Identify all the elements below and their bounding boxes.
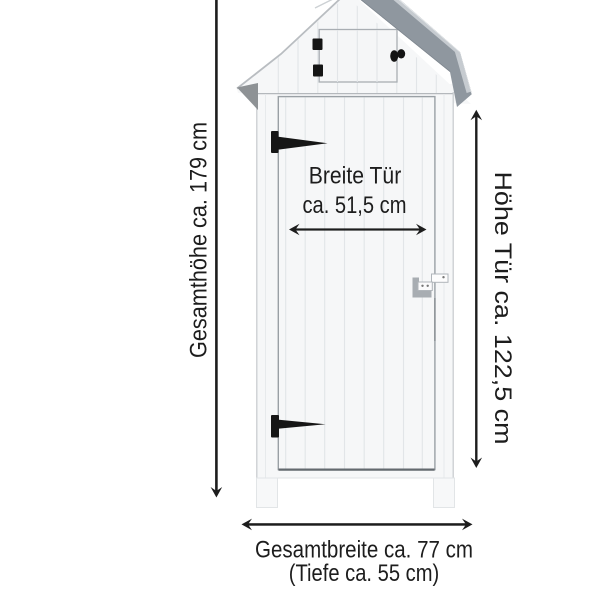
svg-text:(Tiefe ca. 55 cm): (Tiefe ca. 55 cm) — [289, 560, 440, 587]
svg-text:Gesamthöhe ca. 179 cm: Gesamthöhe ca. 179 cm — [186, 122, 213, 358]
svg-text:Höhe Tür ca. 122,5 cm: Höhe Tür ca. 122,5 cm — [489, 172, 516, 445]
svg-text:ca. 51,5 cm: ca. 51,5 cm — [303, 192, 407, 219]
svg-text:Breite Tür: Breite Tür — [309, 163, 402, 190]
